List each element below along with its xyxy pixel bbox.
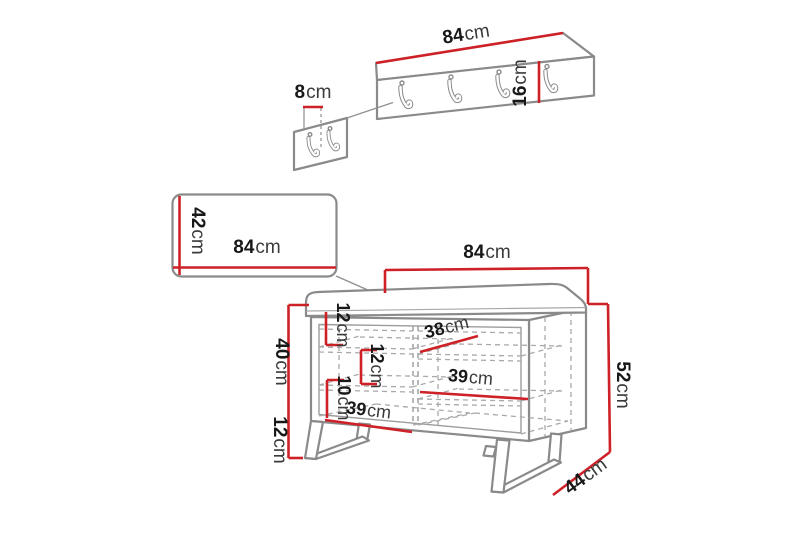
dim-label-bench-width: 84cm xyxy=(463,242,510,263)
dim-label-panel-width: 84cm xyxy=(233,237,280,258)
dim-line-bench-height xyxy=(608,304,610,452)
dim-label-bench-depth: 44cm xyxy=(560,454,611,499)
dim-line-bench-width xyxy=(385,268,588,270)
storage-bench: 84cm 52cm 44cm 40cm 12cm 12cm 12cm 10c xyxy=(269,242,633,499)
dim-label-shelf-mid-gap: 12cm xyxy=(367,343,387,388)
dim-label-bench-height: 52cm xyxy=(612,361,633,408)
dim-label-leg-height: 12cm xyxy=(269,416,290,463)
dim-label-shelf-top-gap: 12cm xyxy=(333,302,353,347)
dim-label-rail-height: 16cm xyxy=(510,59,531,106)
diagram-canvas: 84cm 16cm 8cm 42cm 84cm xyxy=(0,0,800,533)
bench-leg-back-left xyxy=(484,446,497,457)
dim-label-panel-height: 42cm xyxy=(187,207,208,254)
dim-label-body-height: 40cm xyxy=(271,338,292,385)
coat-hook-rail: 84cm 16cm xyxy=(376,20,594,119)
wall-panel: 42cm 84cm xyxy=(173,195,387,299)
dim-label-hook-spacing: 8cm xyxy=(295,82,332,103)
bench-leg-back-right xyxy=(549,434,562,464)
furniture-dimension-diagram: 84cm 16cm 8cm 42cm 84cm xyxy=(0,0,800,533)
dim-label-shelf-right-mid: 39cm xyxy=(447,365,494,389)
bench-side-face xyxy=(529,308,586,441)
